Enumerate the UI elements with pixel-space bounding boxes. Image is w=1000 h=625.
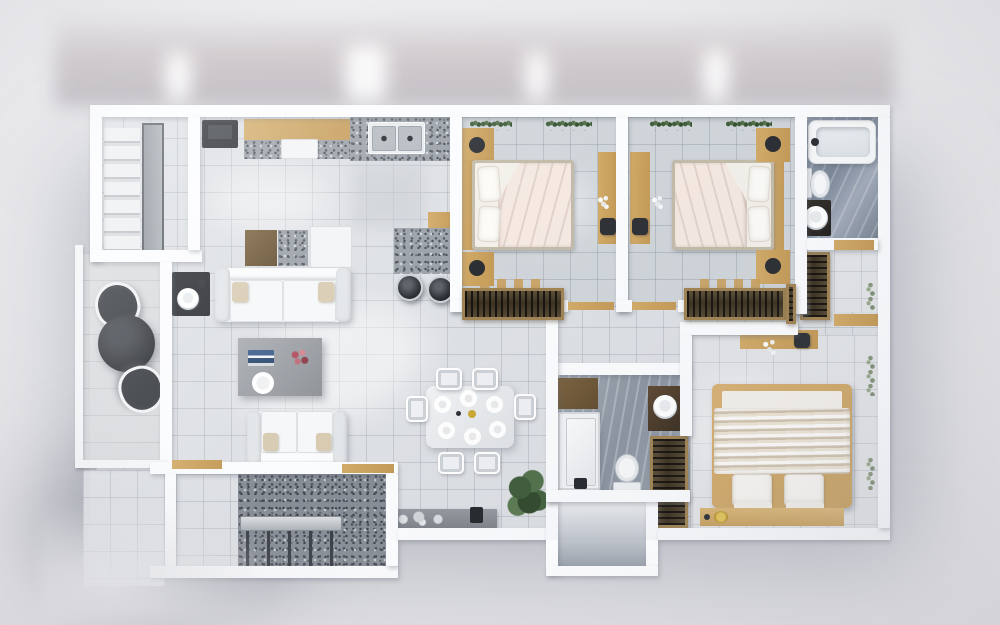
vignette-overlay (0, 0, 1000, 625)
floor-plan-render (0, 0, 1000, 625)
